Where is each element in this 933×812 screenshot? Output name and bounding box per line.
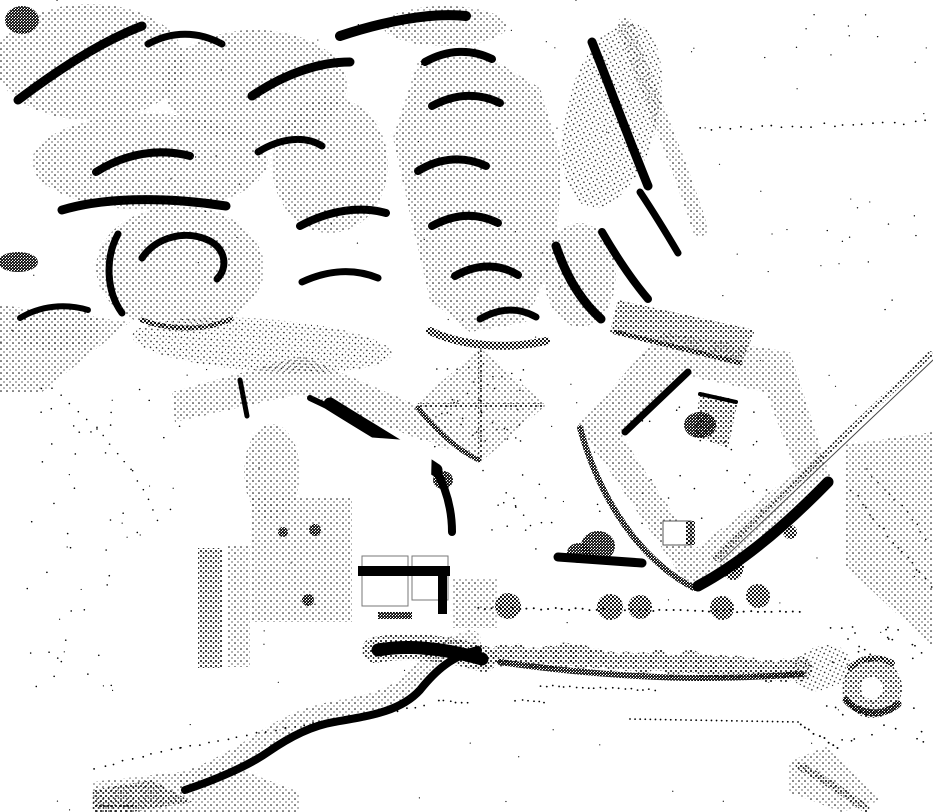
garden-bush (597, 594, 623, 620)
roof-dark-patch (684, 412, 716, 438)
garden-bush (746, 584, 770, 608)
tree-blob (783, 525, 797, 539)
terrace-bar2 (378, 612, 412, 619)
dithered-aerial-photo (0, 0, 933, 812)
garden-bush (495, 593, 521, 619)
terrace-bar (358, 566, 450, 576)
roof-tree-dot (309, 524, 321, 536)
roof-tree-dot (302, 594, 314, 606)
terrace-roof (362, 556, 408, 606)
column-strip (228, 545, 250, 667)
terrace-bar-vertical (438, 568, 447, 614)
garden-bush (628, 595, 652, 619)
wall-shadow (558, 557, 642, 563)
roof-tree-dot (278, 527, 288, 537)
court-building-shade (686, 521, 695, 545)
dithered-aerial-photo-frame (0, 0, 933, 812)
column-strip (198, 548, 222, 668)
tree-shadow-blob (5, 6, 39, 34)
garden-bush (723, 560, 743, 580)
south-roof-block (252, 498, 352, 622)
terrace-block (452, 578, 497, 628)
garden-bush (710, 596, 734, 620)
